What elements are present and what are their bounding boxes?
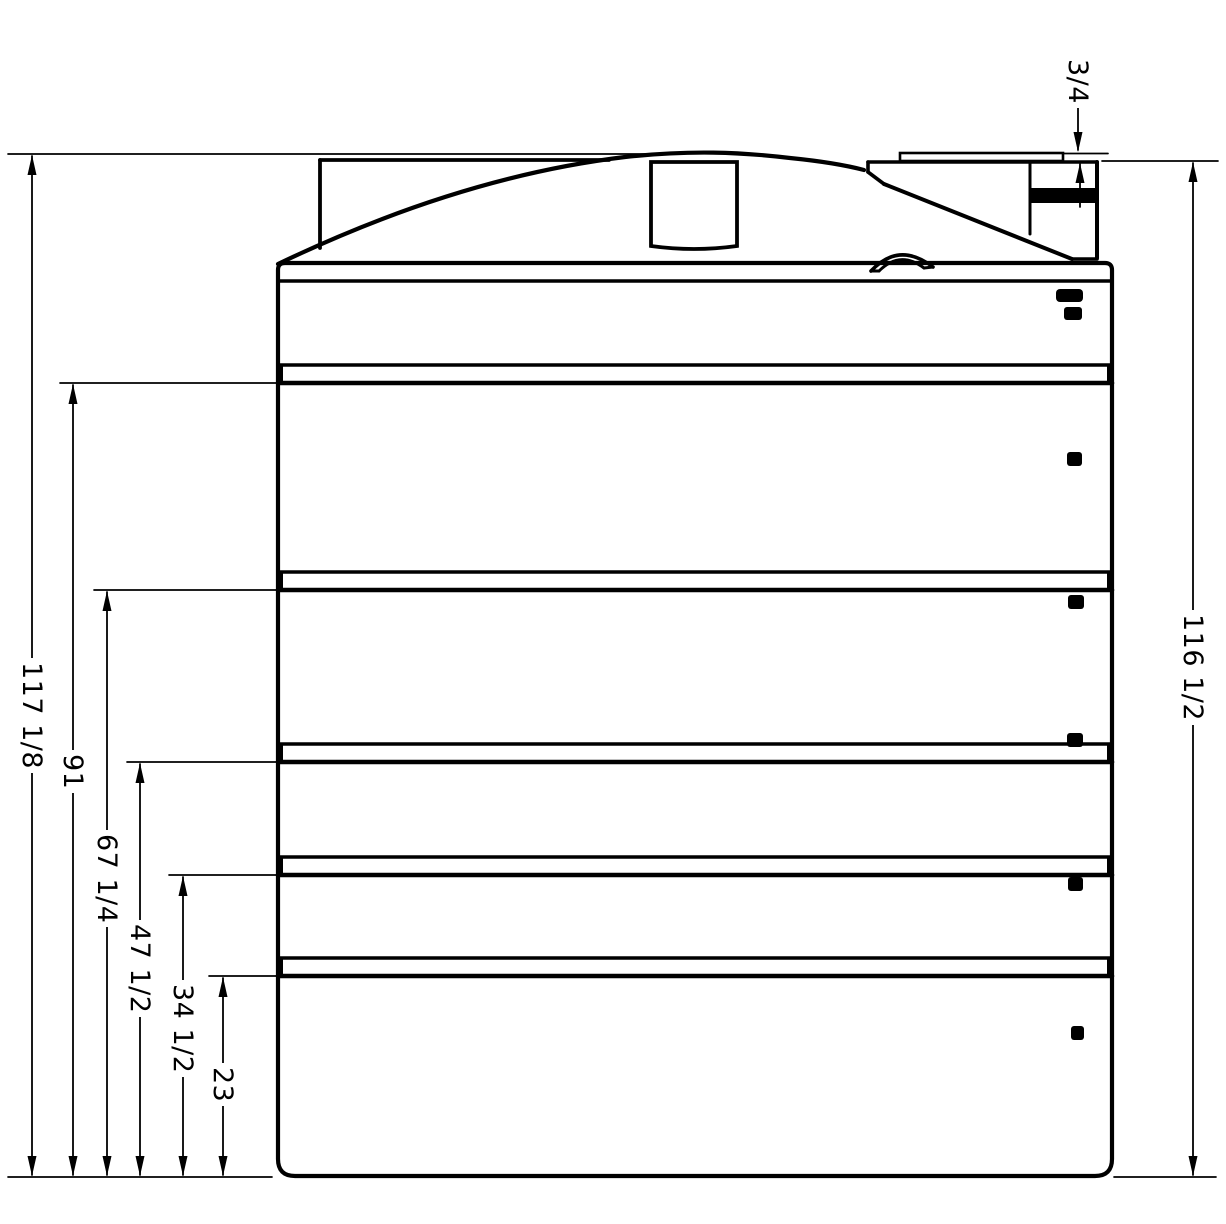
manway-box: [651, 162, 737, 249]
tank-body-outline: [278, 263, 1112, 1176]
dimension-label-fitting-lip: 3/4: [1062, 55, 1092, 108]
rib-groove-4: [278, 857, 1112, 875]
dome-pad: [320, 160, 609, 248]
dimension-label-rib-67-1-4: 67 1/4: [91, 830, 121, 927]
dimension-label-rib-91: 91: [57, 750, 87, 793]
inlet-fitting: [868, 153, 1097, 259]
dimension-label-rib-23: 23: [207, 1063, 237, 1106]
rib-groove-2: [278, 572, 1112, 590]
rib-groove-3: [278, 744, 1112, 762]
dimension-label-overall-height: 117 1/8: [16, 658, 46, 773]
dimension-arrowheads: [28, 132, 1198, 1176]
drawing-canvas: 117 1/8 91 67 1/4 47 1/2 34 1/2 23 116 1…: [0, 0, 1226, 1224]
dimension-label-right-height: 116 1/2: [1177, 610, 1207, 725]
dimension-label-rib-34-1-2: 34 1/2: [167, 980, 197, 1077]
rib-groove-5: [278, 958, 1112, 976]
thread-band: [1031, 188, 1097, 203]
fitting-lip-plate: [900, 153, 1063, 161]
dimension-label-rib-47-1-2: 47 1/2: [124, 920, 154, 1017]
tank-dome-curve: [278, 153, 864, 264]
side-fittings: [1056, 289, 1084, 1040]
rib-groove-1: [278, 365, 1112, 383]
